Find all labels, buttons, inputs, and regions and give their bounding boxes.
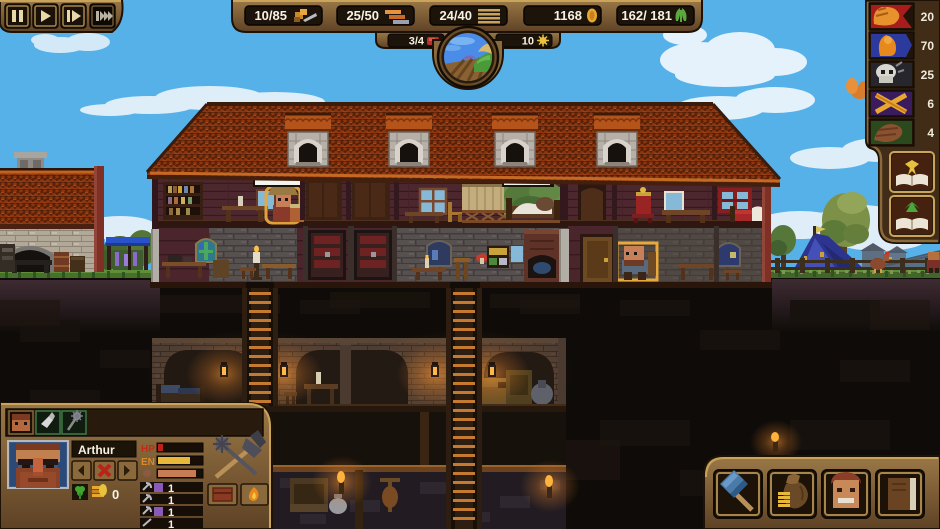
svg-text:6: 6: [927, 97, 934, 111]
svg-text:24/40: 24/40: [439, 8, 472, 23]
svg-text:20: 20: [921, 10, 935, 24]
svg-text:25: 25: [921, 68, 935, 82]
svg-text:1168: 1168: [554, 8, 582, 23]
svg-text:Arthur: Arthur: [78, 443, 115, 457]
svg-text:1: 1: [168, 495, 174, 507]
svg-text:4: 4: [927, 126, 934, 140]
svg-text:3/4: 3/4: [409, 36, 425, 48]
svg-text:1: 1: [168, 507, 174, 519]
svg-text:10/85: 10/85: [254, 8, 287, 23]
svg-text:0: 0: [112, 487, 119, 502]
svg-text:10: 10: [522, 36, 534, 48]
svg-text:25/50: 25/50: [346, 8, 379, 23]
svg-text:EN: EN: [141, 457, 155, 468]
svg-text:162/ 181: 162/ 181: [621, 8, 672, 23]
svg-text:1: 1: [168, 519, 174, 529]
svg-text:1: 1: [168, 483, 174, 495]
svg-text:HP: HP: [141, 444, 155, 455]
svg-text:70: 70: [921, 39, 935, 53]
